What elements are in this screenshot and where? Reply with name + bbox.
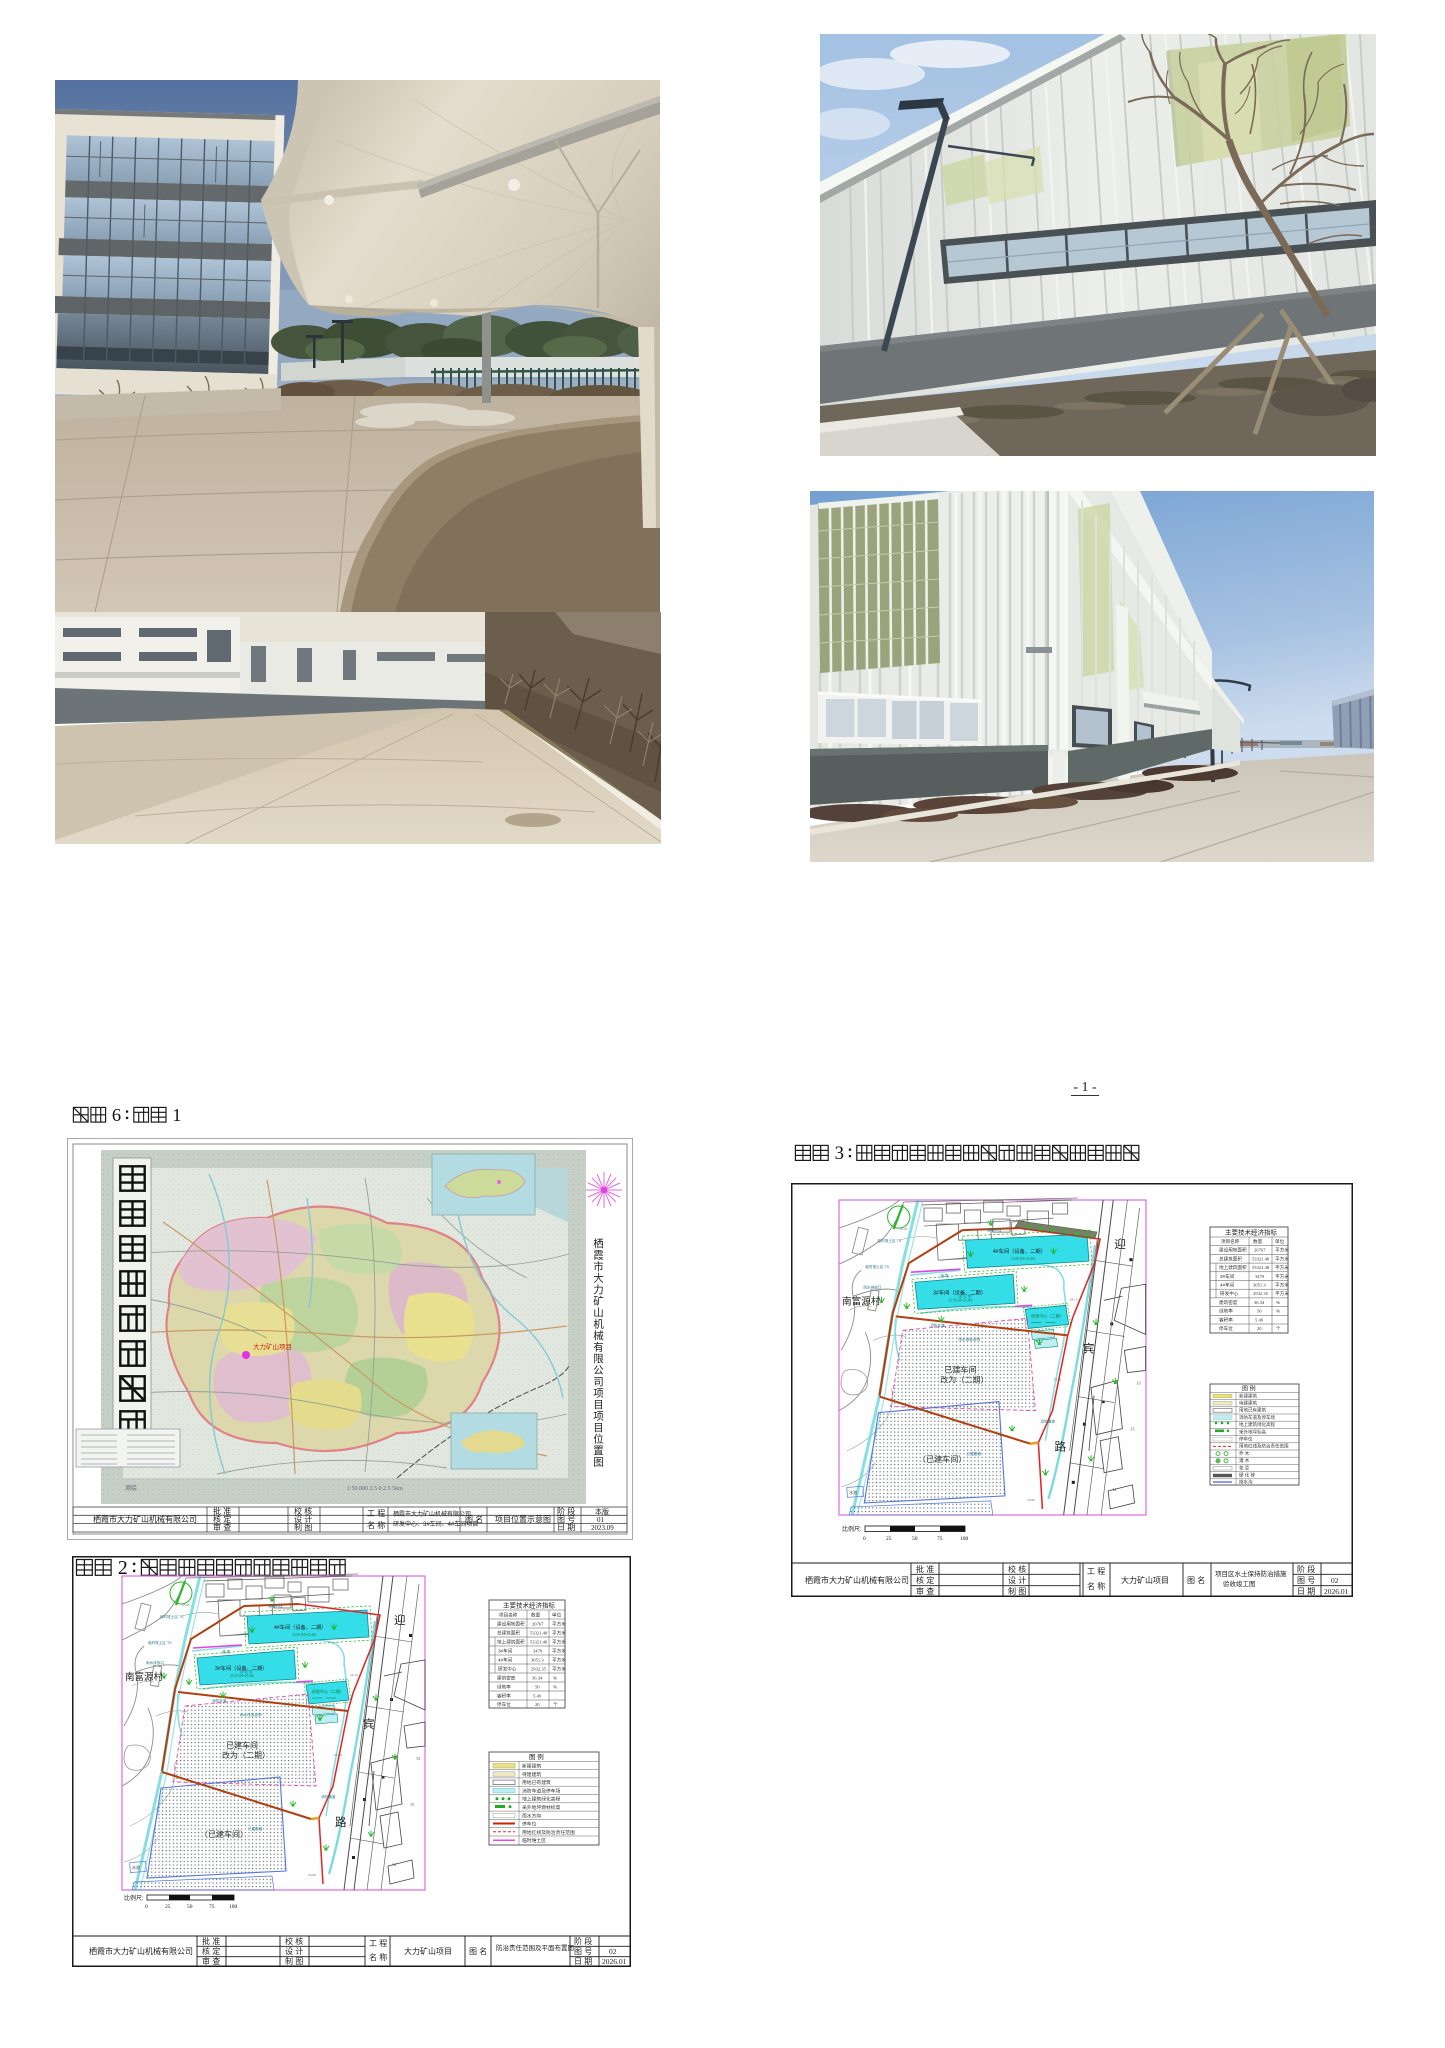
- svg-text:3051.3: 3051.3: [1253, 1283, 1266, 1288]
- svg-text:5.49: 5.49: [1255, 1317, 1264, 1322]
- svg-text:地上建筑绿化高程: 地上建筑绿化高程: [522, 1796, 561, 1803]
- svg-text:53321.48: 53321.48: [1252, 1265, 1270, 1270]
- svg-text:地上建筑面积: 地上建筑面积: [497, 1639, 525, 1646]
- svg-text:%: %: [553, 1676, 557, 1681]
- svg-text:容积率: 容积率: [497, 1693, 511, 1700]
- svg-text:雨水方向: 雨水方向: [522, 1812, 541, 1819]
- svg-text:图 例: 图 例: [1242, 1385, 1256, 1393]
- svg-text:%: %: [1276, 1300, 1280, 1305]
- svg-text:3#车间: 3#车间: [1220, 1273, 1235, 1280]
- svg-text:用地红线及防治责任范围: 用地红线及防治责任范围: [1239, 1443, 1289, 1450]
- svg-text:6: 6: [112, 1105, 121, 1125]
- svg-text:新建建筑: 新建建筑: [1239, 1392, 1257, 1399]
- svg-text:项目名称: 项目名称: [1221, 1238, 1240, 1245]
- svg-text:总建筑面积: 总建筑面积: [497, 1630, 520, 1637]
- svg-text:平方米: 平方米: [552, 1666, 566, 1673]
- svg-text:项目区水土保持防治措施: 项目区水土保持防治措施: [1215, 1569, 1287, 1578]
- svg-text:项目位置示意图: 项目位置示意图: [495, 1514, 551, 1524]
- svg-text:4#车间: 4#车间: [498, 1657, 513, 1664]
- svg-text:测绘: 测绘: [125, 1484, 137, 1492]
- svg-text:比例尺:: 比例尺:: [124, 1894, 144, 1902]
- svg-text:建设用地面积: 建设用地面积: [497, 1621, 525, 1628]
- svg-text:主要技术经济指标: 主要技术经济指标: [1225, 1228, 1278, 1237]
- svg-text:设 计: 设 计: [285, 1946, 303, 1956]
- svg-text:待建建筑: 待建建筑: [522, 1771, 541, 1778]
- svg-text:待建建筑: 待建建筑: [1239, 1400, 1257, 1407]
- svg-text:20767: 20767: [532, 1622, 544, 1627]
- svg-text:平方米: 平方米: [1275, 1255, 1289, 1262]
- svg-text:本版: 本版: [595, 1507, 609, 1516]
- svg-text:50: 50: [187, 1904, 193, 1910]
- svg-text:平方米: 平方米: [1275, 1290, 1289, 1297]
- svg-text:新建建筑: 新建建筑: [522, 1763, 541, 1770]
- svg-text:平方米: 平方米: [1275, 1247, 1289, 1254]
- svg-text:校 核: 校 核: [1008, 1564, 1026, 1574]
- svg-text:图 例: 图 例: [529, 1752, 544, 1761]
- svg-text:绿地率: 绿地率: [1219, 1308, 1233, 1315]
- svg-text:36.34: 36.34: [1254, 1300, 1265, 1305]
- svg-text:平方米: 平方米: [552, 1657, 566, 1664]
- svg-text:设 计: 设 计: [1008, 1575, 1026, 1585]
- svg-text:采外地坪燃材标高: 采外地坪燃材标高: [522, 1804, 561, 1811]
- svg-text:数量: 数量: [531, 1612, 541, 1619]
- svg-text:4#车间: 4#车间: [1220, 1282, 1235, 1289]
- svg-text:53321.48: 53321.48: [1252, 1256, 1270, 1261]
- svg-text:栖霞市大力矿山机械有限公司: 栖霞市大力矿山机械有限公司: [805, 1575, 909, 1585]
- svg-text:数量: 数量: [1253, 1238, 1263, 1245]
- svg-text:栖霞市大力矿山机械有限公司: 栖霞市大力矿山机械有限公司: [93, 1514, 197, 1524]
- svg-text:单位: 单位: [1275, 1238, 1285, 1245]
- svg-text:75: 75: [937, 1536, 943, 1542]
- svg-text:图 名: 图 名: [1187, 1575, 1205, 1585]
- svg-text:1: 1: [172, 1105, 181, 1125]
- svg-text:100: 100: [229, 1904, 238, 1910]
- svg-text:平方米: 平方米: [1275, 1264, 1289, 1271]
- svg-text:50: 50: [912, 1536, 918, 1542]
- svg-text:用地红线及防治责任范围: 用地红线及防治责任范围: [522, 1829, 575, 1836]
- svg-text:栖霞市大力矿山机械有限公司: 栖霞市大力矿山机械有限公司: [393, 1510, 471, 1518]
- svg-text:01: 01: [597, 1516, 605, 1524]
- svg-text:采外地坪标高: 采外地坪标高: [1239, 1428, 1266, 1435]
- svg-text:工 程: 工 程: [1087, 1567, 1105, 1576]
- svg-text:50: 50: [535, 1685, 540, 1690]
- svg-text:硬 化 砖: 硬 化 砖: [1239, 1472, 1256, 1479]
- svg-text:02: 02: [1331, 1576, 1339, 1585]
- svg-text:审 查: 审 查: [213, 1522, 231, 1532]
- svg-text:2026.01: 2026.01: [602, 1957, 627, 1966]
- svg-text:灌 木: 灌 木: [1239, 1457, 1250, 1464]
- svg-text:停车位: 停车位: [497, 1701, 511, 1708]
- svg-text:36.34: 36.34: [532, 1676, 543, 1681]
- svg-text:20767: 20767: [1254, 1248, 1266, 1253]
- svg-text:20: 20: [535, 1702, 540, 1707]
- svg-text:100: 100: [960, 1536, 969, 1542]
- svg-text:平方米: 平方米: [552, 1648, 566, 1655]
- svg-text:名 称: 名 称: [367, 1520, 385, 1530]
- svg-text:栖霞市大力矿山机械有限公司: 栖霞市大力矿山机械有限公司: [89, 1946, 193, 1956]
- svg-text:50: 50: [1257, 1309, 1262, 1314]
- svg-text:个: 个: [1276, 1326, 1281, 1331]
- svg-text:1:50 000 2.5 0 2.5 5km: 1:50 000 2.5 0 2.5 5km: [347, 1486, 403, 1492]
- svg-text:主要技术经济指标: 主要技术经济指标: [503, 1601, 556, 1610]
- svg-text:项目名称: 项目名称: [499, 1612, 518, 1619]
- svg-text:停车位: 停车位: [1219, 1325, 1233, 1332]
- svg-text:%: %: [553, 1685, 557, 1690]
- svg-text:消防车道及停车场: 消防车道及停车场: [522, 1787, 561, 1794]
- svg-text:图 号: 图 号: [574, 1947, 592, 1956]
- svg-text:单位: 单位: [552, 1612, 562, 1619]
- svg-text:验收竣工图: 验收竣工图: [1223, 1579, 1256, 1588]
- svg-text:平方米: 平方米: [552, 1621, 566, 1628]
- svg-text:3#车间: 3#车间: [498, 1648, 513, 1655]
- svg-text:名 称: 名 称: [1087, 1581, 1105, 1591]
- svg-text:制 图: 制 图: [285, 1956, 303, 1966]
- svg-text:大力矿山项目: 大力矿山项目: [1121, 1575, 1169, 1585]
- svg-text:平方米: 平方米: [1275, 1282, 1289, 1289]
- svg-text:研发中心: 研发中心: [1220, 1290, 1239, 1297]
- svg-text:停车位: 停车位: [522, 1821, 537, 1828]
- svg-text:2026.01: 2026.01: [1324, 1587, 1349, 1596]
- svg-text:0: 0: [145, 1904, 148, 1910]
- svg-text:20: 20: [1257, 1326, 1262, 1331]
- svg-text:批 准: 批 准: [916, 1564, 934, 1574]
- svg-text:栖霞市大力矿山机械有限公司项目项目位置图: 栖霞市大力矿山机械有限公司项目项目位置图: [592, 1237, 604, 1468]
- svg-text:建设用地面积: 建设用地面积: [1219, 1247, 1247, 1254]
- svg-text:平方米: 平方米: [552, 1630, 566, 1637]
- svg-text:停车位: 停车位: [1239, 1436, 1253, 1443]
- svg-text:2023.09: 2023.09: [591, 1524, 614, 1532]
- svg-text:建筑密度: 建筑密度: [1219, 1299, 1238, 1306]
- svg-text:乔 木: 乔 木: [1239, 1450, 1250, 1457]
- svg-text:02: 02: [609, 1947, 617, 1956]
- svg-text:建筑密度: 建筑密度: [497, 1675, 516, 1682]
- svg-text:校 核: 校 核: [285, 1936, 303, 1946]
- svg-text:名 称: 名 称: [369, 1952, 387, 1962]
- svg-text:审 查: 审 查: [916, 1586, 934, 1596]
- svg-text:总建筑面积: 总建筑面积: [1219, 1255, 1242, 1262]
- svg-text:5.49: 5.49: [533, 1694, 542, 1699]
- svg-text:地上建筑面积: 地上建筑面积: [1219, 1264, 1247, 1271]
- svg-text:消防车道及停车场: 消防车道及停车场: [1239, 1414, 1275, 1421]
- svg-text:3479: 3479: [533, 1649, 543, 1654]
- svg-text:3: 3: [835, 1143, 844, 1164]
- svg-text:25: 25: [165, 1904, 171, 1910]
- svg-text:0: 0: [863, 1536, 866, 1542]
- svg-text:研发中心: 研发中心: [498, 1666, 517, 1673]
- svg-text:容积率: 容积率: [1219, 1316, 1233, 1323]
- svg-text:平方米: 平方米: [552, 1639, 566, 1646]
- svg-text:%: %: [1276, 1309, 1280, 1314]
- svg-text:制 图: 制 图: [294, 1522, 312, 1532]
- svg-text:批 准: 批 准: [202, 1936, 220, 1946]
- svg-text:75: 75: [209, 1904, 215, 1910]
- svg-text:日 期: 日 期: [574, 1957, 592, 1966]
- svg-text:审 查: 审 查: [202, 1956, 220, 1966]
- svg-text:平方米: 平方米: [1275, 1273, 1289, 1280]
- svg-text:用地已有建筑: 用地已有建筑: [1239, 1407, 1266, 1414]
- svg-text:制 图: 制 图: [1008, 1586, 1026, 1596]
- svg-text:2932.35: 2932.35: [531, 1667, 547, 1672]
- svg-text:25: 25: [886, 1536, 892, 1542]
- svg-text:工 程: 工 程: [367, 1509, 385, 1518]
- svg-text:花 草: 花 草: [1239, 1464, 1250, 1471]
- svg-text:图 号: 图 号: [1297, 1576, 1315, 1585]
- svg-text:地上建筑绿化高程: 地上建筑绿化高程: [1239, 1421, 1275, 1428]
- svg-text:2932.35: 2932.35: [1253, 1291, 1269, 1296]
- svg-text:核 定: 核 定: [916, 1575, 934, 1585]
- svg-text:3051.3: 3051.3: [531, 1658, 544, 1663]
- svg-text:核 定: 核 定: [202, 1946, 220, 1956]
- svg-text:排水沟: 排水沟: [1239, 1479, 1253, 1486]
- svg-text:图 名: 图 名: [465, 1514, 483, 1524]
- svg-text:个: 个: [553, 1702, 558, 1707]
- svg-text:日 期: 日 期: [1297, 1587, 1315, 1596]
- svg-text:53321.48: 53321.48: [530, 1631, 548, 1636]
- svg-text:用地已有建筑: 用地已有建筑: [522, 1779, 551, 1786]
- svg-text:3479: 3479: [1255, 1274, 1265, 1279]
- svg-text:阶 段: 阶 段: [574, 1936, 592, 1946]
- svg-text:临时堆土区: 临时堆土区: [522, 1837, 546, 1844]
- svg-text:阶 段: 阶 段: [1297, 1564, 1315, 1574]
- svg-text:日 期: 日 期: [557, 1523, 575, 1532]
- svg-text:工 程: 工 程: [369, 1939, 387, 1948]
- svg-text:防治责任范围及平面布置图: 防治责任范围及平面布置图: [496, 1943, 574, 1952]
- svg-text:大力矿山项目: 大力矿山项目: [404, 1946, 452, 1956]
- svg-text:53321.48: 53321.48: [530, 1640, 548, 1645]
- svg-text:大力矿山项目: 大力矿山项目: [253, 1342, 292, 1351]
- svg-text:图 名: 图 名: [469, 1946, 487, 1956]
- svg-text:绿地率: 绿地率: [497, 1684, 511, 1691]
- svg-text:比例尺:: 比例尺:: [842, 1525, 862, 1533]
